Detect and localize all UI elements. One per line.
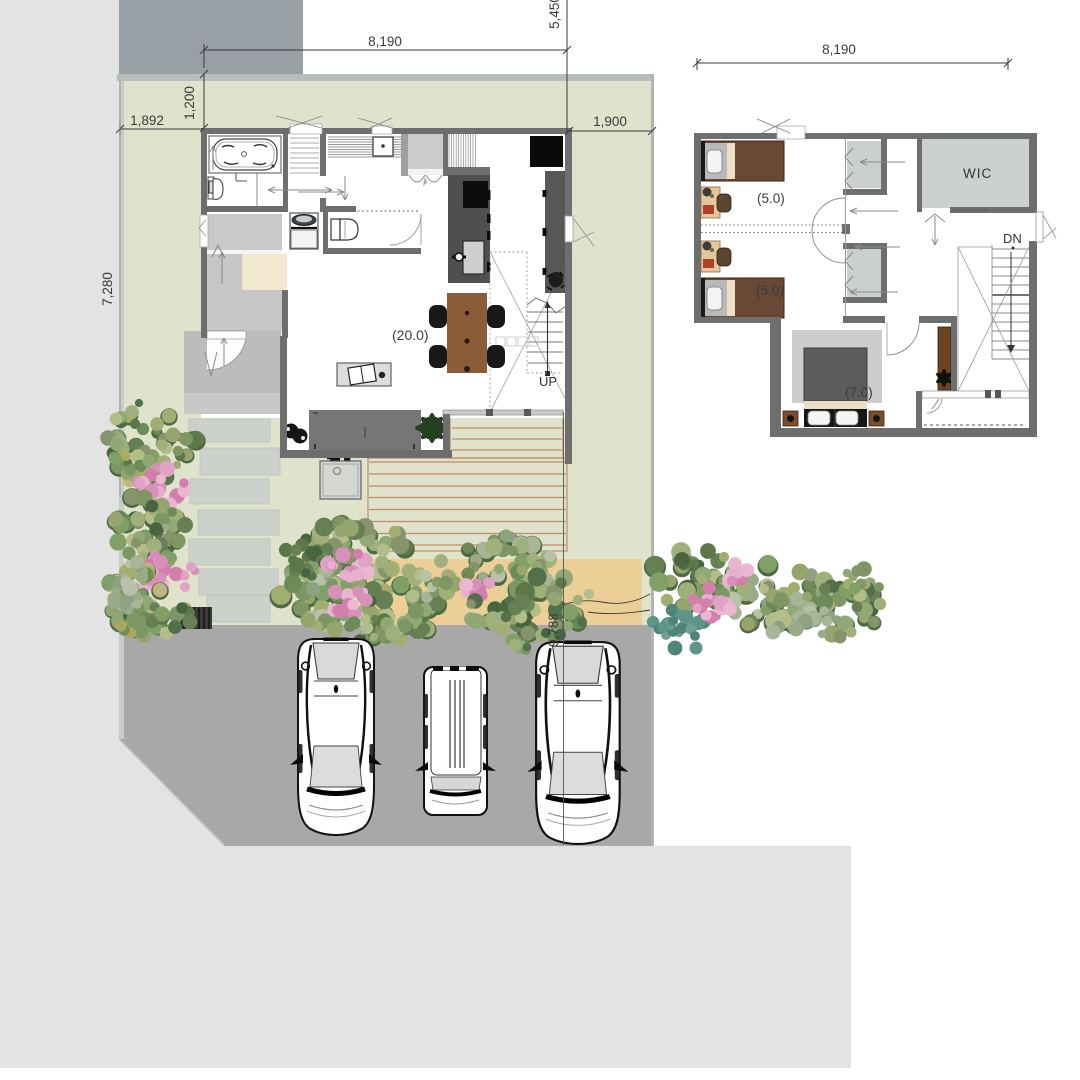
svg-text:1,200: 1,200 — [182, 86, 197, 120]
svg-text:1,892: 1,892 — [130, 113, 164, 128]
svg-text:8,190: 8,190 — [822, 42, 856, 57]
svg-text:UP: UP — [539, 374, 557, 389]
svg-text:5,450: 5,450 — [547, 0, 562, 29]
svg-text:(20.0): (20.0) — [392, 327, 429, 343]
svg-text:(7.0): (7.0) — [845, 385, 873, 400]
svg-text:7,280: 7,280 — [100, 272, 115, 306]
svg-text:(5.0): (5.0) — [757, 191, 785, 206]
svg-text:1,900: 1,900 — [593, 114, 627, 129]
svg-text:WIC: WIC — [963, 166, 992, 181]
svg-text:(5.0): (5.0) — [756, 283, 784, 298]
svg-text:8,190: 8,190 — [368, 34, 402, 49]
svg-text:DN: DN — [1003, 231, 1022, 246]
svg-text:9,788: 9,788 — [546, 613, 561, 647]
